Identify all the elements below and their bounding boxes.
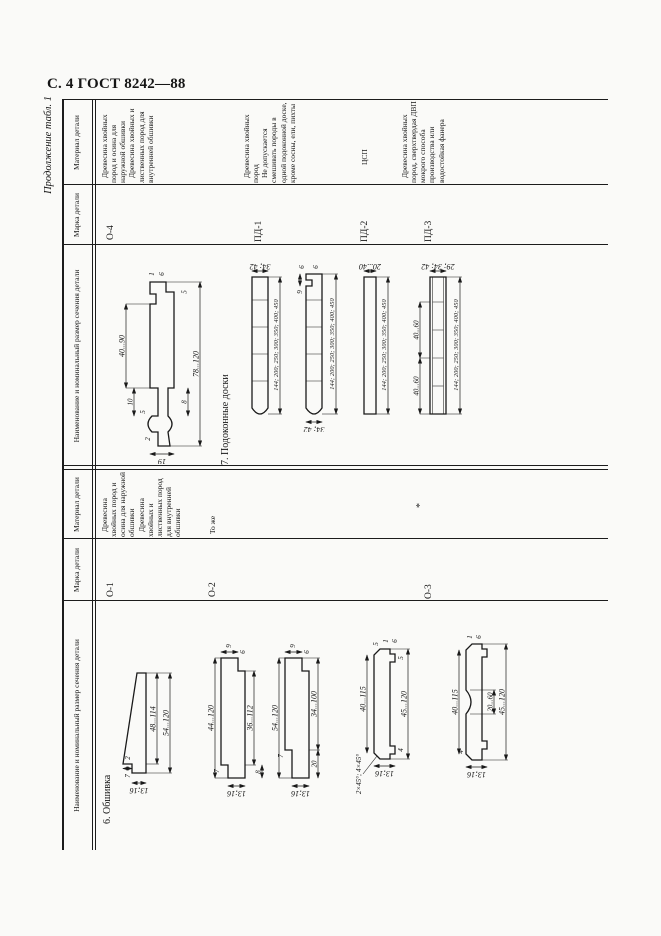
dim-label: 40...90 [118, 335, 127, 357]
dim-label: 6 [391, 639, 399, 643]
dim-label: 40...60 [413, 320, 421, 340]
dim-label: 2 [144, 437, 152, 441]
dim-label: 20 [311, 760, 319, 768]
dim-label: 40...115 [359, 686, 368, 711]
dim-label: 5 [181, 290, 189, 294]
material-o4: Древесина хвойных пород и осина для нару… [100, 101, 155, 183]
col-header-mark: Марка детали [63, 539, 92, 601]
dim-label: 20...60 [487, 692, 495, 712]
col-header-name: Наименование и номинальный размер сечени… [63, 601, 92, 850]
dim-label: 54...120 [272, 705, 280, 731]
rotated-table: Продолжение табл. 1 Наименование и номин… [60, 94, 610, 850]
col-header-mark: Марка детали [63, 185, 92, 245]
material-pd1: Древесина хвойных пород Не допускается с… [242, 101, 297, 183]
page-title: С. 4 ГОСТ 8242—88 [47, 76, 186, 93]
dim-label: 54...120 [162, 710, 171, 736]
mark-pd2: ПД-2 [360, 221, 370, 242]
mark-o3: О-3 [424, 584, 434, 599]
section-drawing-pd1a: 34; 42 144; 200; 250; 300; 350; 400; 450 [240, 260, 288, 432]
material-paragraph: Древесина хвойных пород и осина для нару… [100, 101, 127, 183]
dim-label: 29; 34; 42 [421, 262, 454, 271]
material-pd2: ЦСП [360, 115, 369, 165]
dim-label: 45...120 [498, 689, 507, 715]
scanned-gost-page: С. 4 ГОСТ 8242—88 Продолжение табл. 1 На… [0, 0, 661, 936]
dim-label: 48...114 [149, 706, 158, 731]
col-header-material: Материал детали [63, 470, 92, 539]
dim-label: 7 [124, 774, 132, 778]
dim-label: 44...120 [208, 705, 216, 731]
material-paragraph: Древесина хвойных пород и осина для нару… [100, 472, 137, 537]
dim-label: 4 [397, 748, 405, 752]
dim-label: 7 [277, 754, 285, 758]
grid-line [62, 466, 608, 467]
dim-label: 1 [466, 635, 474, 639]
dim-label: 8 [181, 400, 189, 404]
dim-label: 7 [213, 769, 221, 773]
material-paragraph: Древесина хвойных пород, сверхтвердая ДВ… [400, 101, 446, 183]
dim-label: 13;16 [130, 786, 149, 795]
dim-label: 5 [372, 642, 380, 646]
dim-label: 9 [225, 644, 233, 648]
grid-line [62, 600, 608, 601]
grid-line [95, 100, 96, 850]
dim-label: 36...112 [246, 705, 255, 731]
dim-label: 13;16 [227, 789, 246, 798]
dim-label: 5 [397, 656, 405, 660]
dim-label: 9 [289, 644, 297, 648]
material-pd3: Древесина хвойных пород, сверхтвердая ДВ… [400, 101, 446, 183]
material-o3-footnote: * [415, 488, 427, 508]
grid-line [62, 184, 608, 185]
dim-label: 34; 42 [250, 262, 272, 271]
material-paragraph: Не допускается смешивать породы в одной … [260, 101, 297, 183]
col-header-material: Материал детали [63, 100, 92, 185]
mark-pd3: ПД-3 [424, 221, 434, 242]
section-drawing-pd1b: 9 6 6 34; 42 144; 200; 250; 300; 350; 40… [292, 260, 344, 432]
grid-line [62, 99, 608, 100]
section-drawing-o3b: 40...115 4 1 6 20...60 45...120 13;16 [444, 625, 530, 800]
dim-label: 78...120 [192, 351, 201, 377]
section-drawing-pd2: 20...40 144; 200; 250; 300; 350; 400; 45… [350, 260, 396, 432]
dim-label: 144; 200; 250; 300; 350; 400; 450 [329, 298, 336, 390]
grid-line [62, 538, 608, 539]
material-o1: Древесина хвойных пород и осина для нару… [100, 472, 182, 537]
section-drawing-o4: 40...90 10 5 2 1 6 8 5 78...120 19 [100, 264, 222, 464]
dim-label: 6 [312, 265, 320, 269]
dim-label: 6 [475, 635, 483, 639]
dim-label: 34; 42 [304, 425, 326, 432]
material-paragraph: Древесина хвойных и лиственных пород для… [127, 101, 154, 183]
dim-label: 6 [303, 650, 311, 654]
mark-o2: О-2 [208, 582, 218, 597]
dim-label: 8 [255, 770, 263, 774]
dim-label: 6 [239, 650, 247, 654]
dim-label: 20...40 [359, 262, 381, 271]
mark-o4: О-4 [106, 225, 116, 240]
material-paragraph: Древесина хвойных и лиственных пород для… [137, 472, 183, 537]
dim-label: 13;16 [375, 769, 394, 778]
dim-label: 40...60 [413, 376, 421, 396]
section-drawing-pd3: 40...60 40...60 29; 34; 42 144; 200; 250… [408, 260, 472, 432]
dim-label: 144; 200; 250; 300; 350; 400; 450 [273, 299, 280, 391]
section-drawing-o3a: 2×45°; 4×45° 40...115 5 1 6 4 5 45...120… [352, 619, 438, 804]
section-drawing-o2a: 44...120 7 36...112 8 9 6 13;16 [208, 638, 266, 798]
section-drawing-o2b: 54...120 7 20 34...100 9 6 13;16 [272, 638, 330, 798]
dim-label: 2×45°; 4×45° [355, 754, 363, 794]
grid-line [62, 244, 608, 245]
dim-label: 13;16 [291, 789, 310, 798]
dim-label: 19 [158, 457, 166, 464]
col-header-name: Наименование и номинальный размер сечени… [63, 245, 92, 467]
dim-label: 34...100 [310, 691, 319, 718]
dim-label: 2 [124, 756, 132, 760]
dim-label: 6 [158, 272, 166, 276]
dim-label: 10 [127, 398, 135, 406]
dim-label: 5 [139, 410, 147, 414]
mark-o1: О-1 [106, 582, 116, 597]
dim-label: 9 [296, 290, 304, 294]
grid-line [62, 469, 608, 470]
dim-label: 40...115 [451, 689, 460, 714]
dim-label: 45...120 [400, 691, 409, 717]
dim-label: 13;16 [467, 770, 486, 779]
material-o2: То же [208, 474, 217, 534]
dim-label: 1 [382, 639, 390, 643]
dim-label: 144; 200; 250; 300; 350; 400; 450 [381, 299, 388, 391]
material-paragraph: Древесина хвойных пород [242, 101, 260, 183]
dim-label: 1 [148, 272, 156, 276]
mark-pd1: ПД-1 [254, 221, 264, 242]
dim-label: 4 [457, 750, 465, 754]
section-drawing-o1: 7 2 48...114 54...120 13;16 [106, 648, 191, 798]
dim-label: 6 [298, 265, 306, 269]
table-continuation-label: Продолжение табл. 1 [43, 96, 54, 194]
dim-label: 144; 200; 250; 300; 350; 400; 450 [453, 299, 460, 391]
